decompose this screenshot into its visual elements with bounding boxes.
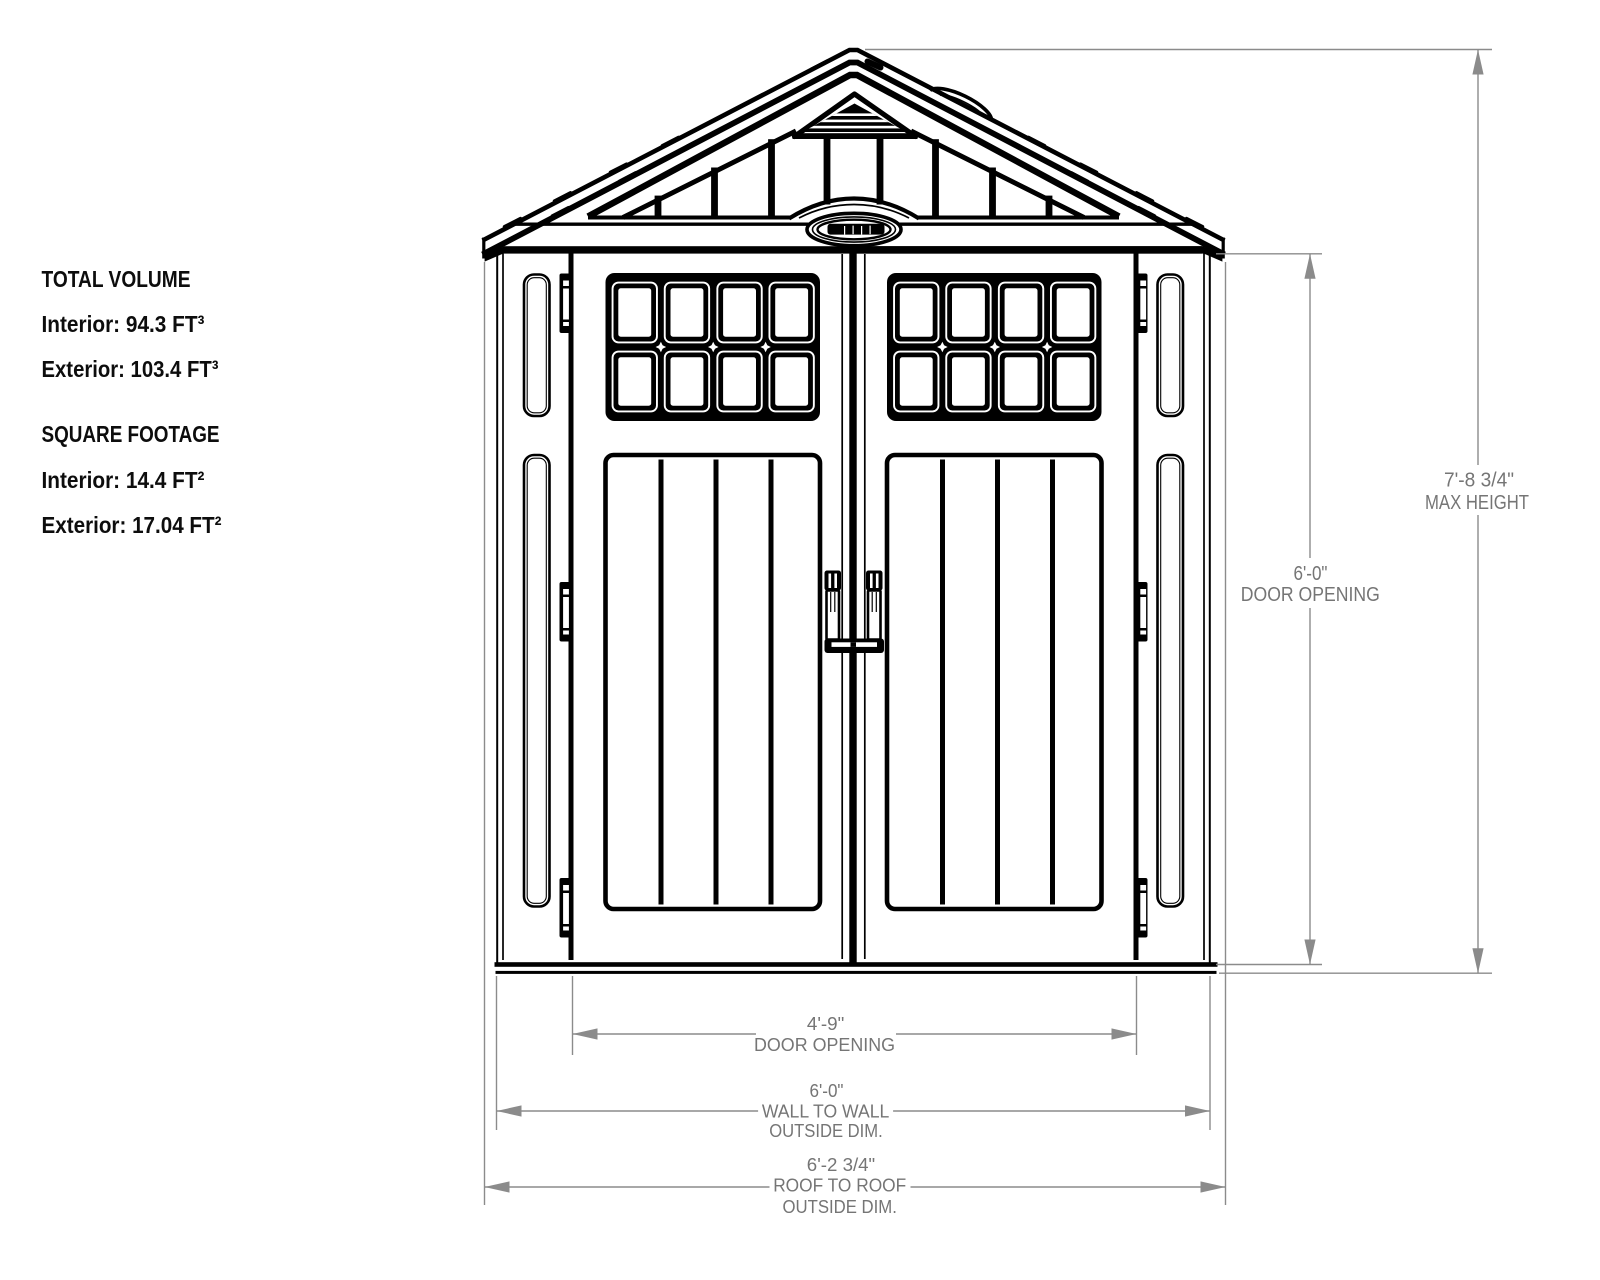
svg-text:4'-9": 4'-9" <box>807 1014 845 1034</box>
svg-text:7'-8 3/4": 7'-8 3/4" <box>1444 469 1514 492</box>
svg-text:TOTAL VOLUME: TOTAL VOLUME <box>42 266 191 292</box>
svg-text:DOOR OPENING: DOOR OPENING <box>754 1035 895 1055</box>
svg-text:Interior: 14.4 FT²: Interior: 14.4 FT² <box>42 467 205 493</box>
svg-text:DOOR OPENING: DOOR OPENING <box>1241 583 1380 606</box>
svg-text:Exterior: 103.4 FT³: Exterior: 103.4 FT³ <box>42 356 219 382</box>
svg-text:MAX HEIGHT: MAX HEIGHT <box>1425 491 1529 514</box>
svg-text:ROOF TO ROOF: ROOF TO ROOF <box>773 1176 906 1196</box>
svg-text:SQUARE FOOTAGE: SQUARE FOOTAGE <box>42 421 220 447</box>
svg-text:OUTSIDE DIM.: OUTSIDE DIM. <box>769 1121 883 1141</box>
svg-text:Interior: 94.3 FT³: Interior: 94.3 FT³ <box>42 311 205 337</box>
svg-text:6'-0": 6'-0" <box>810 1081 844 1101</box>
svg-text:6'-0": 6'-0" <box>1294 562 1328 585</box>
svg-text:6'-2 3/4": 6'-2 3/4" <box>807 1155 875 1175</box>
svg-text:OUTSIDE DIM.: OUTSIDE DIM. <box>783 1197 897 1217</box>
svg-text:Exterior: 17.04 FT²: Exterior: 17.04 FT² <box>42 512 222 538</box>
svg-text:WALL TO WALL: WALL TO WALL <box>762 1102 890 1122</box>
